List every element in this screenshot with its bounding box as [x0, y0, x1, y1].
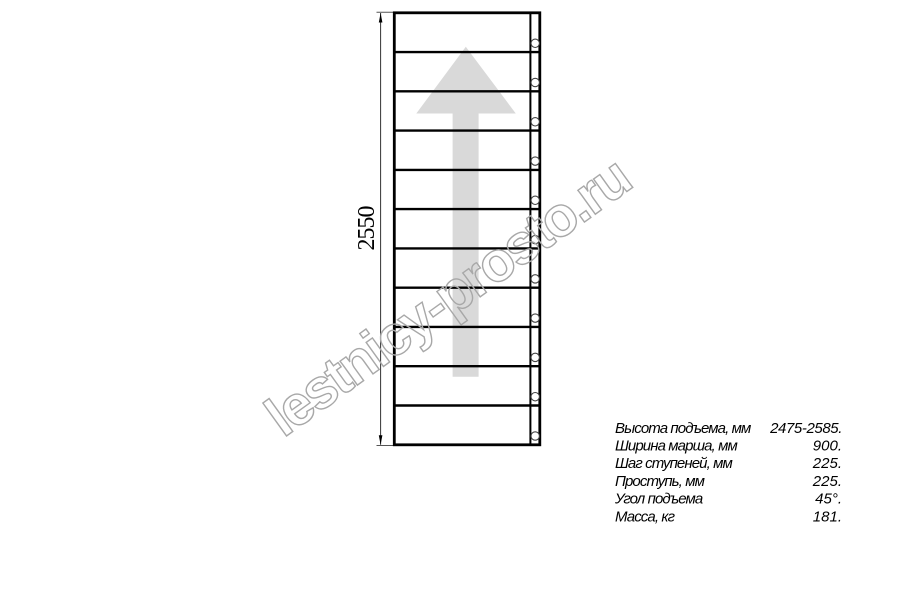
svg-text:900.: 900.	[813, 438, 842, 455]
svg-text:225.: 225.	[812, 455, 842, 472]
svg-text:2550: 2550	[354, 206, 380, 251]
svg-text:Шаг ступеней, мм: Шаг ступеней, мм	[615, 455, 733, 472]
svg-text:Масса, кг: Масса, кг	[615, 508, 676, 525]
svg-text:Ширина марша, мм: Ширина марша, мм	[615, 438, 737, 455]
svg-text:Высота подъема, мм: Высота подъема, мм	[615, 420, 751, 437]
svg-text:lestnicy-prosto.ru: lestnicy-prosto.ru	[254, 145, 641, 448]
svg-text:45°.: 45°.	[815, 491, 842, 508]
svg-text:Угол подъема: Угол подъема	[614, 491, 703, 508]
svg-text:225.: 225.	[812, 473, 842, 490]
svg-text:Проступь, мм: Проступь, мм	[615, 473, 705, 490]
svg-text:181.: 181.	[813, 508, 842, 525]
svg-text:2475-2585.: 2475-2585.	[769, 420, 842, 437]
